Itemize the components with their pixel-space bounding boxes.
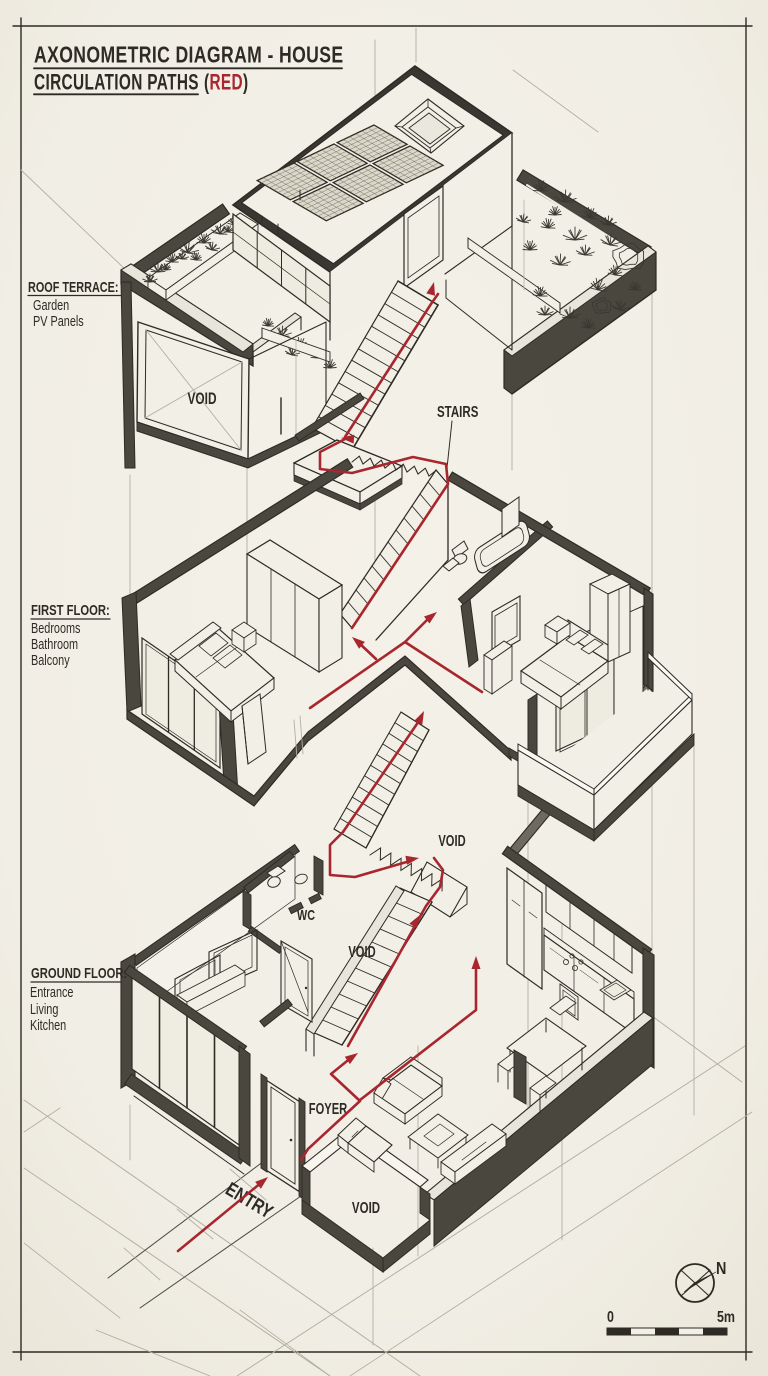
svg-text:VOID: VOID: [348, 943, 375, 960]
svg-text:Entrance: Entrance: [30, 983, 73, 1000]
svg-text:Living: Living: [30, 1000, 58, 1017]
svg-text:ROOF TERRACE:: ROOF TERRACE:: [28, 278, 118, 295]
svg-text:GROUND FLOOR:: GROUND FLOOR:: [31, 964, 127, 981]
svg-text:VOID: VOID: [352, 1198, 380, 1216]
svg-text:VOID: VOID: [438, 832, 465, 849]
svg-text:FIRST FLOOR:: FIRST FLOOR:: [31, 601, 110, 618]
svg-text:Balcony: Balcony: [31, 651, 70, 668]
svg-text:0: 0: [607, 1309, 614, 1327]
svg-text:STAIRS: STAIRS: [437, 402, 478, 420]
svg-text:CIRCULATION PATHS: CIRCULATION PATHS: [34, 71, 199, 95]
svg-text:(RED): (RED): [204, 71, 248, 95]
svg-text:Bedrooms: Bedrooms: [31, 619, 80, 636]
svg-text:AXONOMETRIC DIAGRAM - HOUSE: AXONOMETRIC DIAGRAM - HOUSE: [34, 42, 343, 68]
svg-text:PV Panels: PV Panels: [33, 312, 84, 329]
svg-text:N: N: [716, 1259, 726, 1279]
svg-text:5m: 5m: [717, 1309, 735, 1327]
svg-text:Bathroom: Bathroom: [31, 635, 78, 652]
svg-text:WC: WC: [297, 906, 315, 923]
svg-text:Garden: Garden: [33, 296, 69, 313]
svg-text:Kitchen: Kitchen: [30, 1016, 66, 1033]
svg-text:FOYER: FOYER: [309, 1100, 348, 1117]
svg-text:VOID: VOID: [187, 390, 216, 408]
